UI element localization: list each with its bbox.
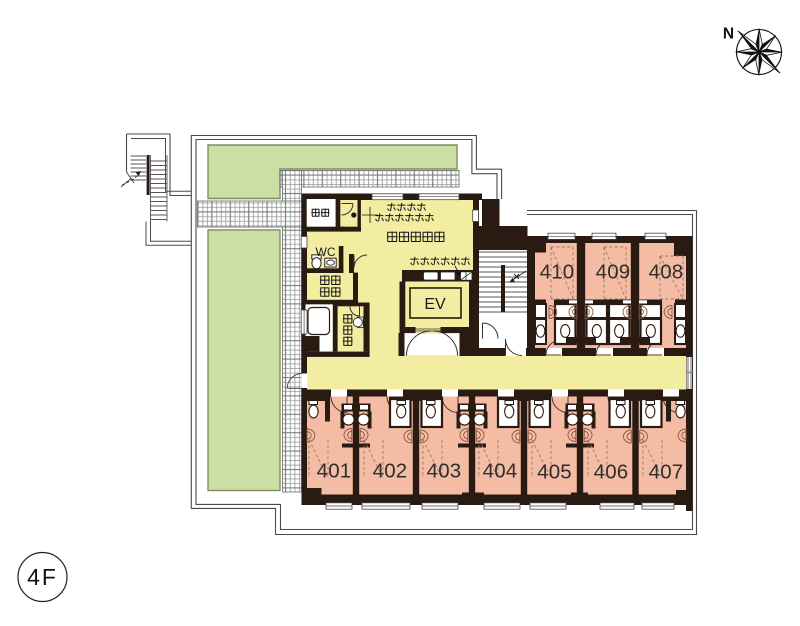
svg-text:403: 403 <box>427 460 462 483</box>
svg-text:406: 406 <box>594 461 629 484</box>
svg-text:407: 407 <box>649 461 684 484</box>
svg-text:405: 405 <box>537 461 572 484</box>
svg-text:N: N <box>723 26 734 43</box>
svg-text:WC: WC <box>316 245 336 259</box>
svg-text:EV: EV <box>424 296 446 313</box>
svg-text:402: 402 <box>373 460 408 483</box>
svg-text:410: 410 <box>540 261 575 284</box>
svg-text:408: 408 <box>649 261 684 284</box>
svg-text:409: 409 <box>596 261 631 284</box>
svg-text:401: 401 <box>317 460 352 483</box>
svg-text:4F: 4F <box>27 564 58 590</box>
svg-text:404: 404 <box>483 460 518 483</box>
